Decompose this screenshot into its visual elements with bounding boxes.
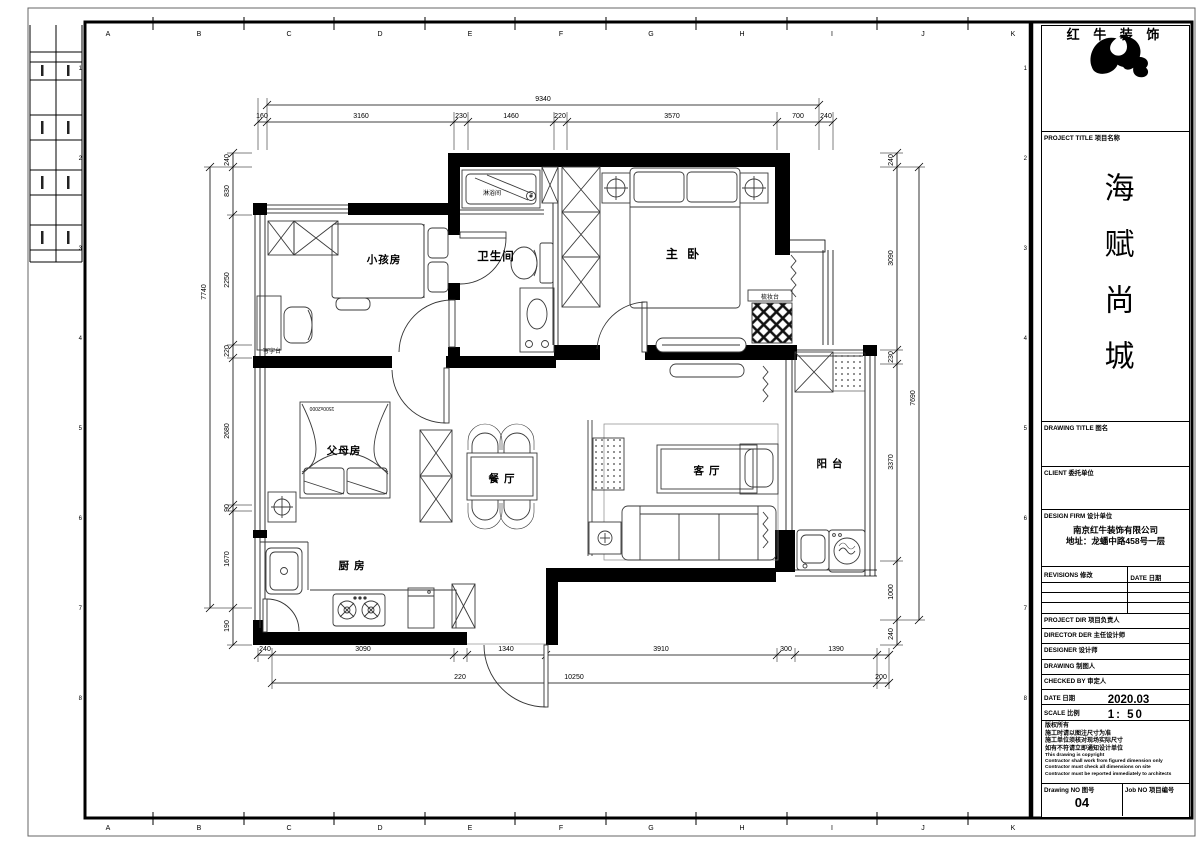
note-line: 施工单位须核对现场实际尺寸 xyxy=(1045,738,1186,746)
design-firm-cell: DESIGN FIRM 设计单位 南京红牛装饰有限公司 地址：龙蟠中路458号一… xyxy=(1042,509,1189,566)
children-door-leaf xyxy=(449,300,455,347)
furniture xyxy=(257,167,865,628)
notes-cell: 版权所有 施工时请以图注尺寸为准 施工单位须核对现场实际尺寸 如有不符请立即通知… xyxy=(1042,720,1189,783)
master-closet xyxy=(562,167,600,307)
revisions-header: REVISIONS 修改DATE 日期 xyxy=(1042,566,1189,582)
svg-text:220: 220 xyxy=(224,345,231,357)
master-bed xyxy=(630,168,740,308)
label-parents-room: 父母房 xyxy=(326,444,362,457)
svg-text:2250: 2250 xyxy=(224,272,231,288)
svg-text:G: G xyxy=(648,31,653,38)
svg-text:240: 240 xyxy=(224,154,231,166)
label-shower-room: 淋浴间 xyxy=(483,189,501,197)
label-bathroom: 卫生间 xyxy=(477,249,515,263)
rednow-bull-logo xyxy=(1042,26,1189,98)
svg-text:3570: 3570 xyxy=(664,113,680,120)
svg-text:F: F xyxy=(559,825,563,832)
svg-text:10250: 10250 xyxy=(564,674,584,681)
svg-text:4: 4 xyxy=(1024,336,1028,342)
drawing-no-value: 04 xyxy=(1042,795,1122,810)
svg-text:I: I xyxy=(831,825,833,832)
balcony-curtain-2 xyxy=(763,512,768,548)
svg-text:A: A xyxy=(106,31,111,38)
svg-text:8: 8 xyxy=(1024,696,1028,702)
director-label: DIRECTOR DER 主任设计师 xyxy=(1042,628,1189,643)
svg-text:F: F xyxy=(559,31,563,38)
svg-text:7: 7 xyxy=(79,606,83,612)
svg-text:3090: 3090 xyxy=(355,646,371,653)
project-name: 海赋尚城 xyxy=(1094,172,1138,396)
label-balcony: 阳 台 xyxy=(817,457,844,470)
svg-text:6: 6 xyxy=(79,516,83,522)
svg-text:G: G xyxy=(648,825,653,832)
speaker xyxy=(589,522,621,554)
drawing-title-label: DRAWING TITLE 图名 xyxy=(1042,421,1189,466)
drawing-no-row: Drawing NO 图号 04 Job NO 项目编号 xyxy=(1042,783,1189,816)
scale-label: SCALE 比例 xyxy=(1042,707,1108,718)
dim-chain-bottom: 240 3090 1340 3910 300 1390 220 10250 20… xyxy=(254,646,893,689)
svg-text:9340: 9340 xyxy=(535,96,551,103)
job-no-label: Job NO 项目编号 xyxy=(1123,784,1189,795)
label-master-bedroom: 主 卧 xyxy=(666,246,702,261)
vanity-basin xyxy=(520,288,554,352)
sheet-frame xyxy=(28,8,1195,836)
svg-text:1670: 1670 xyxy=(224,551,231,567)
note-line: 如有不符请立即通知设计单位 xyxy=(1045,746,1186,754)
balcony-cabinet xyxy=(795,352,865,392)
svg-text:K: K xyxy=(1011,31,1016,38)
svg-text:5: 5 xyxy=(1024,426,1028,432)
tv-console xyxy=(670,364,744,377)
drawing-by-label: DRAWING 制图人 xyxy=(1042,659,1189,674)
svg-text:1460: 1460 xyxy=(503,113,519,120)
svg-text:C: C xyxy=(286,31,291,38)
svg-text:3160: 3160 xyxy=(353,113,369,120)
children-wardrobe xyxy=(268,221,338,255)
svg-text:2680: 2680 xyxy=(224,423,231,439)
svg-text:D: D xyxy=(377,31,382,38)
svg-text:7740: 7740 xyxy=(201,284,208,300)
shower-tray xyxy=(462,170,540,208)
svg-text:190: 190 xyxy=(224,620,231,632)
svg-text:B: B xyxy=(197,31,202,38)
grid-letters-bottom: A B C D E F G H I J K xyxy=(106,812,1016,832)
svg-text:5: 5 xyxy=(79,426,83,432)
dim-chain-top: 9340 160 3160 230 1460 220 3570 700 240 xyxy=(254,96,837,150)
svg-text:C: C xyxy=(286,825,291,832)
svg-text:8: 8 xyxy=(79,696,83,702)
kitchen-door-leaf xyxy=(263,599,267,632)
svg-text:K: K xyxy=(1011,825,1016,832)
svg-text:2: 2 xyxy=(1024,156,1028,162)
project-name-cell: 海赋尚城 xyxy=(1042,146,1189,421)
tv xyxy=(593,438,624,490)
note-line: 施工时请以图注尺寸为准 xyxy=(1045,731,1186,739)
armchair xyxy=(740,444,778,494)
revision-row xyxy=(1042,592,1189,602)
toilet xyxy=(511,243,553,283)
svg-text:240: 240 xyxy=(259,646,271,653)
svg-text:240: 240 xyxy=(888,628,895,640)
designer-label: DESIGNER 设计师 xyxy=(1042,643,1189,659)
svg-text:230: 230 xyxy=(455,113,467,120)
label-dining-room: 餐 厅 xyxy=(488,472,516,485)
sofa xyxy=(622,506,776,560)
svg-text:H: H xyxy=(739,31,744,38)
fridge xyxy=(408,588,434,628)
scale-row: SCALE 比例1: 50 xyxy=(1042,704,1189,720)
drawing-canvas: A B C D E F G H I J K A B C D E F G H I … xyxy=(0,0,1200,844)
svg-text:220: 220 xyxy=(554,113,566,120)
svg-text:J: J xyxy=(921,31,925,38)
label-kitchen: 厨 房 xyxy=(339,559,366,572)
svg-text:7690: 7690 xyxy=(910,390,917,406)
label-children-room: 小孩房 xyxy=(366,253,402,266)
children-bed xyxy=(332,224,448,310)
svg-text:H: H xyxy=(739,825,744,832)
balcony-mat xyxy=(833,353,865,391)
master-nightstand-left xyxy=(602,173,630,203)
label-living-room: 客 厅 xyxy=(693,464,721,477)
label-dressing-table: 梳妆台 xyxy=(761,293,779,301)
shoe-cabinet xyxy=(452,584,475,628)
svg-text:300: 300 xyxy=(780,646,792,653)
revision-row xyxy=(1042,602,1189,613)
balcony-curtain xyxy=(763,366,768,402)
client-label: CLIENT 委托单位 xyxy=(1042,466,1189,509)
checked-by-label: CHECKED BY 审定人 xyxy=(1042,674,1189,689)
svg-text:E: E xyxy=(468,31,473,38)
svg-text:240: 240 xyxy=(820,113,832,120)
svg-text:4: 4 xyxy=(79,336,83,342)
design-firm-name: 南京红牛装饰有限公司 xyxy=(1042,525,1189,536)
floorplan-sheet: A B C D E F G H I J K A B C D E F G H I … xyxy=(0,0,1200,844)
label-desk: 写字台 xyxy=(263,347,281,355)
entry-door-leaf xyxy=(544,645,548,707)
master-door-leaf xyxy=(642,302,647,352)
revisions-label: REVISIONS 修改 xyxy=(1042,569,1128,580)
project-title-label: PROJECT TITLE 项目名称 xyxy=(1042,131,1189,146)
logo-cell: 红 牛 装 饰 xyxy=(1042,26,1189,131)
dim-chain-left: 7740 240 830 2250 220 2680 90 1670 190 xyxy=(201,149,252,649)
kitchen-sink xyxy=(266,548,302,594)
svg-text:160: 160 xyxy=(256,113,268,120)
date-label: DATE 日期 xyxy=(1042,692,1108,703)
svg-text:240: 240 xyxy=(888,154,895,166)
svg-text:3910: 3910 xyxy=(653,646,669,653)
design-firm-address: 地址：龙蟠中路458号一层 xyxy=(1042,536,1189,547)
svg-text:90: 90 xyxy=(224,504,231,512)
parents-nightstand xyxy=(268,492,296,522)
master-curtain xyxy=(791,255,796,297)
svg-text:1000: 1000 xyxy=(888,584,895,600)
svg-text:3090: 3090 xyxy=(888,250,895,266)
svg-text:3: 3 xyxy=(1024,246,1028,252)
note-line: Contractor must be reported immediately … xyxy=(1045,772,1186,778)
svg-text:1340: 1340 xyxy=(498,646,514,653)
revision-row xyxy=(1042,582,1189,592)
washing-machine xyxy=(829,530,865,572)
svg-text:6: 6 xyxy=(1024,516,1028,522)
svg-text:220: 220 xyxy=(454,674,466,681)
svg-text:1390: 1390 xyxy=(828,646,844,653)
svg-text:B: B xyxy=(197,825,202,832)
svg-text:J: J xyxy=(921,825,925,832)
svg-text:I: I xyxy=(831,31,833,38)
svg-text:7: 7 xyxy=(1024,606,1028,612)
drawing-no-label: Drawing NO 图号 xyxy=(1042,784,1122,795)
grid-numbers-right: 1 2 3 4 5 6 7 8 xyxy=(1024,66,1028,702)
svg-text:200: 200 xyxy=(875,674,887,681)
label-bed-size: 1500x2000 xyxy=(309,405,334,411)
parents-door-leaf xyxy=(444,368,449,423)
revision-strip xyxy=(30,25,82,262)
svg-text:830: 830 xyxy=(224,185,231,197)
bath-door-leaf xyxy=(460,232,506,238)
design-firm-label: DESIGN FIRM 设计单位 xyxy=(1042,510,1189,521)
balcony-sink xyxy=(797,530,829,570)
master-nightstand-right xyxy=(740,173,768,203)
note-line: 版权所有 xyxy=(1045,723,1186,731)
svg-text:3370: 3370 xyxy=(888,454,895,470)
date-row: DATE 日期2020.03 xyxy=(1042,689,1189,704)
grid-letters-top: A B C D E F G H I J K xyxy=(106,17,1016,38)
svg-text:230: 230 xyxy=(888,351,895,363)
svg-text:D: D xyxy=(377,825,382,832)
title-block: 红 牛 装 饰 PROJECT TITLE 项目名称 海赋尚城 DRAWING … xyxy=(1041,25,1190,818)
svg-text:A: A xyxy=(106,825,111,832)
project-dir-label: PROJECT DIR 项目负责人 xyxy=(1042,613,1189,628)
duct-shaft xyxy=(542,167,558,203)
svg-text:700: 700 xyxy=(792,113,804,120)
dim-chain-right: 7690 240 3090 230 3370 1000 240 xyxy=(880,149,925,649)
svg-text:E: E xyxy=(468,825,473,832)
parents-wardrobe xyxy=(420,430,452,522)
svg-text:1: 1 xyxy=(1024,66,1028,72)
kitchen-counter xyxy=(260,542,456,628)
